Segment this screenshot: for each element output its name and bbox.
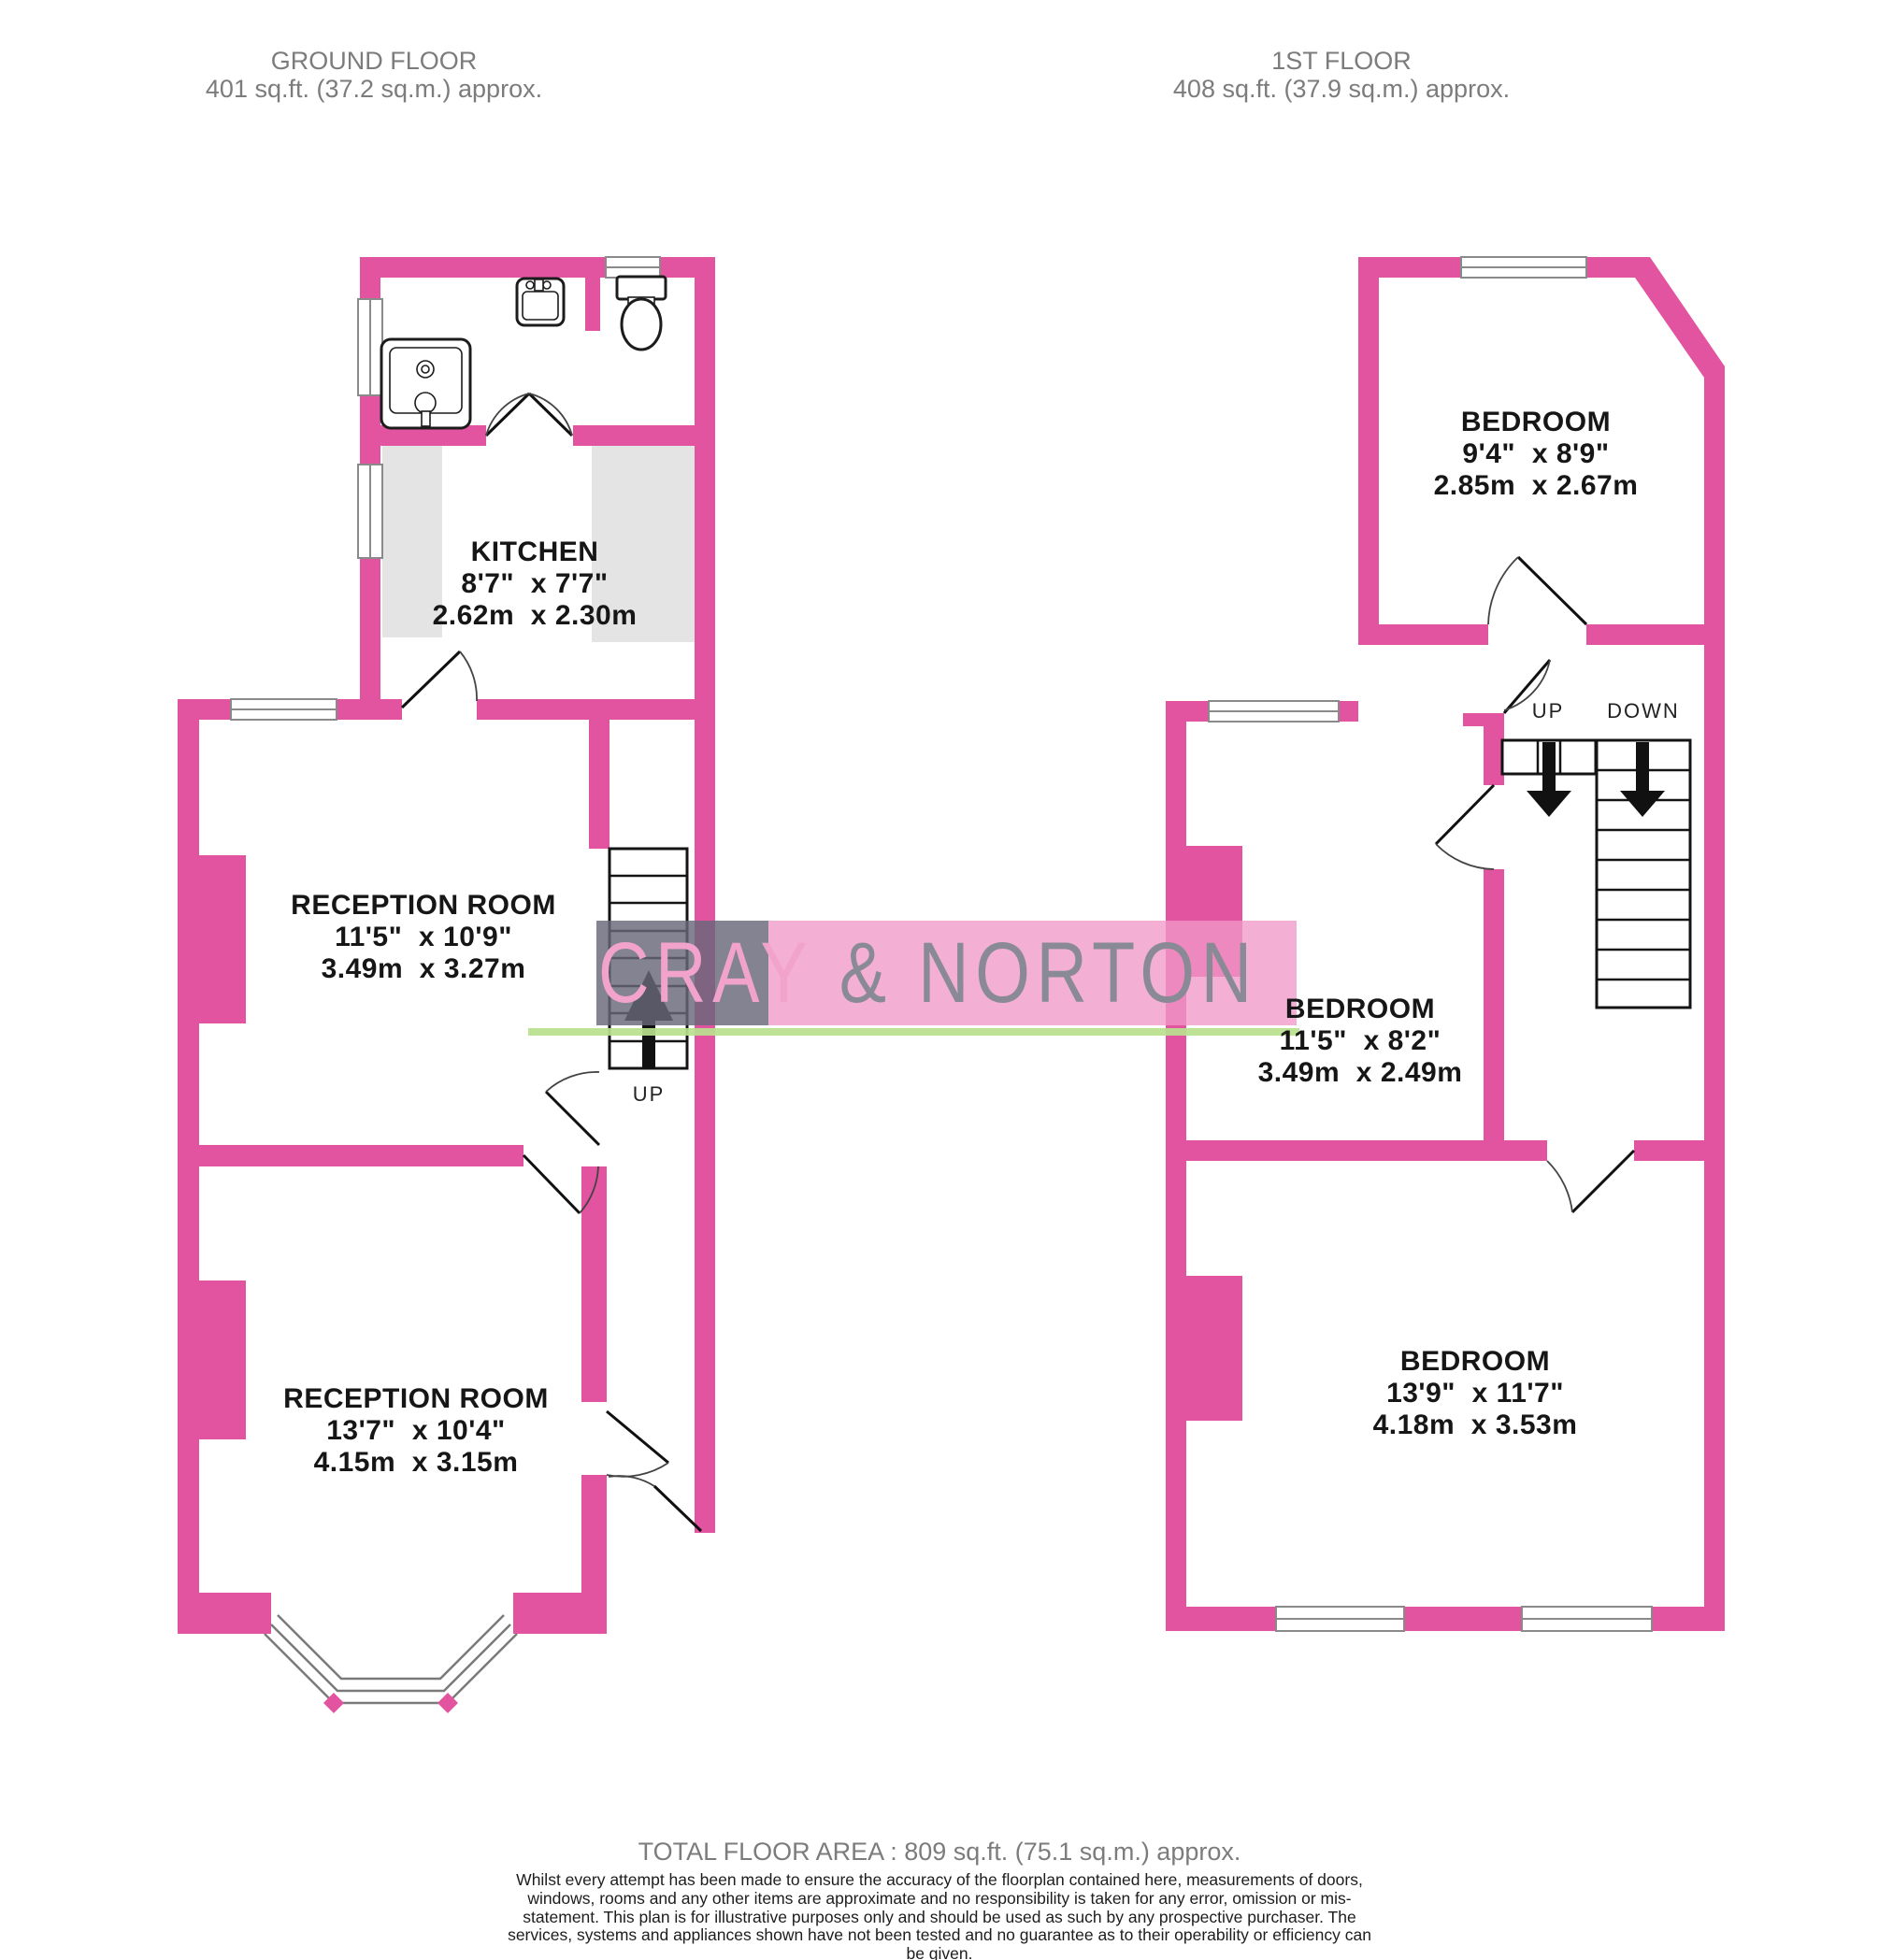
chimney-breast bbox=[1186, 1276, 1242, 1421]
stairs-down-label-first: DOWN bbox=[1607, 699, 1680, 723]
ground-floor-header: GROUND FLOOR 401 sq.ft. (37.2 sq.m.) app… bbox=[122, 47, 626, 103]
floorplan-page: CRAY & NORTON GROUND FLOOR 401 sq.ft. (3… bbox=[0, 0, 1893, 1960]
staircase-down-first bbox=[1597, 740, 1690, 1008]
ground-floor-area: 401 sq.ft. (37.2 sq.m.) approx. bbox=[122, 75, 626, 103]
first-floor-title: 1ST FLOOR bbox=[1089, 47, 1594, 75]
total-floor-area: TOTAL FLOOR AREA : 809 sq.ft. (75.1 sq.m… bbox=[472, 1838, 1407, 1867]
room-label-reception-2: RECEPTION ROOM 13'7" x 10'4" 4.15m x 3.1… bbox=[220, 1383, 612, 1479]
kitchen-sink-icon bbox=[381, 339, 470, 428]
watermark-cray: CRAY bbox=[598, 924, 813, 1023]
room-label-reception-1: RECEPTION ROOM 11'5" x 10'9" 3.49m x 3.2… bbox=[227, 890, 620, 985]
ground-floor-title: GROUND FLOOR bbox=[122, 47, 626, 75]
disclaimer-text: Whilst every attempt has been made to en… bbox=[505, 1871, 1374, 1960]
room-label-bedroom-1: BEDROOM 9'4" x 8'9" 2.85m x 2.67m bbox=[1340, 407, 1732, 502]
room-label-bedroom-2: BEDROOM 11'5" x 8'2" 3.49m x 2.49m bbox=[1164, 994, 1556, 1089]
hand-basin-icon bbox=[517, 279, 564, 325]
room-label-bedroom-3: BEDROOM 13'9" x 11'7" 4.18m x 3.53m bbox=[1279, 1346, 1671, 1441]
stairs-up-label-first: UP bbox=[1532, 699, 1565, 723]
first-floor-header: 1ST FLOOR 408 sq.ft. (37.9 sq.m.) approx… bbox=[1089, 47, 1594, 103]
watermark-logo: CRAY & NORTON bbox=[598, 921, 1258, 1025]
stairs-up-label-ground: UP bbox=[633, 1082, 666, 1107]
room-label-kitchen: KITCHEN 8'7" x 7'7" 2.62m x 2.30m bbox=[390, 536, 680, 632]
disclaimer: Whilst every attempt has been made to en… bbox=[505, 1871, 1374, 1960]
staircase-up-first bbox=[1502, 740, 1596, 817]
first-floor-area: 408 sq.ft. (37.9 sq.m.) approx. bbox=[1089, 75, 1594, 103]
chamfer-wall bbox=[1635, 257, 1725, 378]
toilet-icon bbox=[617, 277, 666, 350]
bay-window bbox=[265, 1615, 517, 1713]
